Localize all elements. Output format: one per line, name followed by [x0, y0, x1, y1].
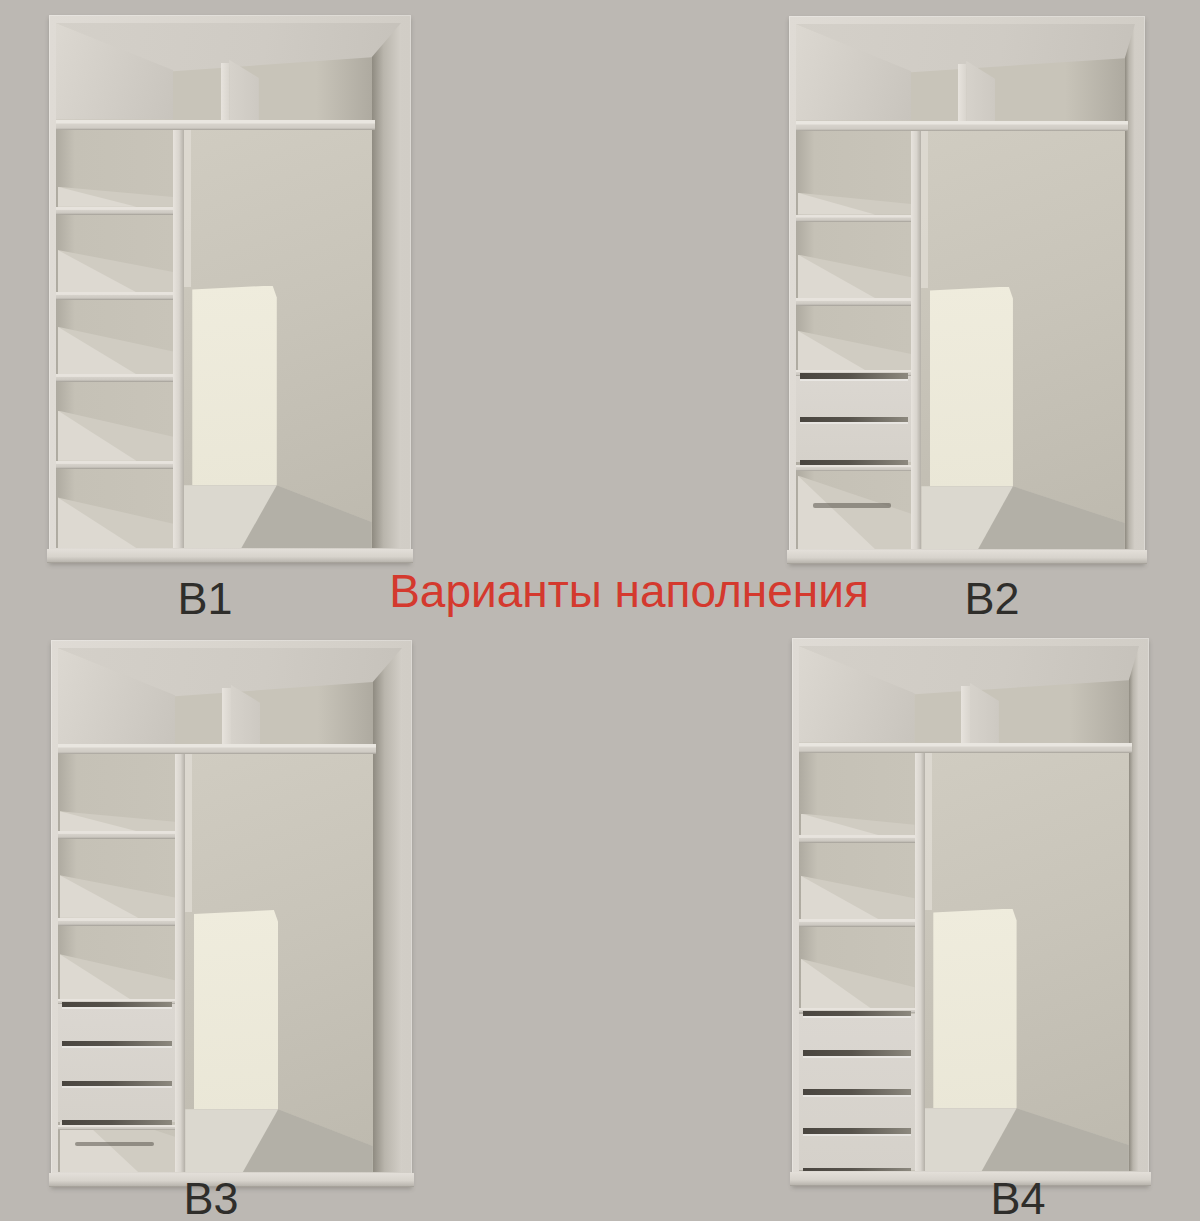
shelf-board — [799, 835, 917, 843]
drawer-gap-line — [62, 1081, 171, 1086]
drawer-gap-line — [62, 1041, 171, 1046]
wardrobe-label-b2: В2 — [964, 576, 1019, 621]
drawer-gap-line — [803, 1089, 911, 1094]
drawer-bottom-board — [796, 465, 913, 470]
wardrobe-variant-b2 — [789, 16, 1145, 563]
drawer-gap-line — [803, 1168, 911, 1171]
top-center-divider — [961, 686, 970, 743]
divider-edge-highlight — [925, 753, 932, 911]
shelf-board — [796, 215, 913, 223]
drawer-gap-line — [62, 1002, 171, 1007]
right-side-wall — [372, 23, 401, 548]
wardrobe-interior — [58, 648, 402, 1172]
top-center-divider — [222, 688, 231, 745]
back-panel — [933, 909, 1016, 1109]
back-panel — [192, 286, 277, 486]
mezzanine-shelf — [58, 744, 376, 754]
divider-edge-highlight — [185, 754, 192, 911]
wardrobe-label-b4: В4 — [990, 1176, 1045, 1221]
right-side-wall — [1125, 24, 1135, 549]
drawer-stack — [58, 1004, 175, 1122]
drawer-gap-line — [800, 373, 908, 378]
center-divider — [175, 744, 185, 1172]
drawer-bottom-board — [58, 1125, 177, 1130]
center-divider — [911, 121, 921, 549]
niche-shadow-line — [75, 1142, 154, 1146]
wardrobe-label-b3: В3 — [183, 1176, 238, 1221]
divider-edge-highlight — [184, 130, 191, 288]
wardrobe-base — [787, 550, 1147, 564]
shelf-board — [56, 461, 175, 469]
shelf-board — [799, 919, 917, 927]
wardrobe-base — [790, 1172, 1151, 1186]
right-side-wall — [373, 648, 402, 1172]
page-canvas: Варианты наполнения В1 В2 В3 В4 — [0, 0, 1200, 1221]
drawer-gap-line — [803, 1050, 911, 1055]
drawer-gap-line — [803, 1128, 911, 1133]
wardrobe-interior — [796, 24, 1135, 549]
mezzanine-shelf — [799, 743, 1132, 753]
back-panel — [930, 287, 1013, 487]
page-title: Варианты наполнения — [389, 568, 869, 614]
back-panel — [194, 910, 278, 1109]
drawer-gap-line — [800, 417, 908, 422]
shelf-board — [58, 831, 177, 839]
divider-edge-highlight — [921, 131, 928, 289]
mezzanine-shelf — [56, 120, 375, 130]
top-center-divider — [958, 64, 966, 121]
drawer-gap-line — [803, 1011, 911, 1016]
wardrobe-base — [47, 549, 413, 563]
mezzanine-shelf — [796, 121, 1128, 131]
wardrobe-interior — [56, 23, 401, 548]
niche-shadow-line — [813, 503, 891, 507]
shelf-board — [58, 918, 177, 926]
shelf-board — [56, 207, 175, 215]
wardrobe-label-b1: В1 — [177, 576, 232, 621]
wardrobe-interior — [799, 646, 1139, 1171]
shelf-board — [56, 292, 175, 300]
wardrobe-variant-b1 — [49, 15, 411, 562]
top-center-divider — [221, 63, 230, 120]
shelf-board — [56, 374, 175, 382]
wardrobe-variant-b3 — [51, 640, 412, 1186]
right-side-wall — [1129, 646, 1139, 1171]
wardrobe-variant-b4 — [792, 638, 1149, 1185]
center-divider — [915, 743, 925, 1171]
center-divider — [173, 120, 183, 548]
shelf-board — [796, 298, 913, 306]
